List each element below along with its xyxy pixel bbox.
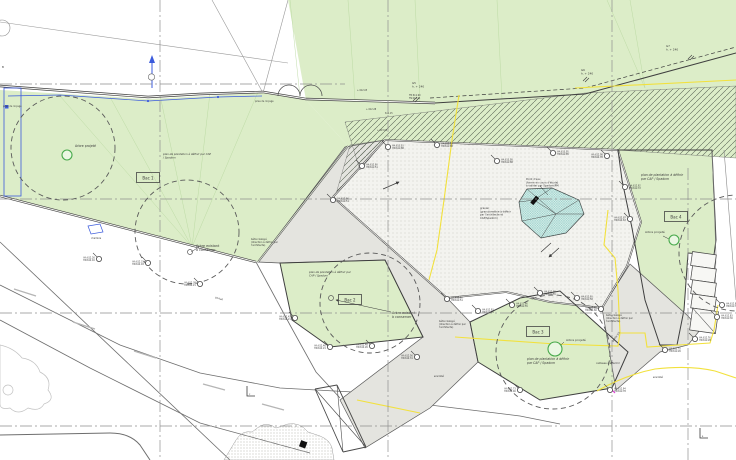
annotation-line: TN 611.75 [409, 97, 421, 100]
marker-level-hn: HN 612.88 [392, 147, 404, 150]
annotation-label: TM 611.90TN 611.75 [409, 94, 421, 100]
annotation-line: CAP/Spadom) [480, 216, 498, 220]
annotation-line: h. + 240 [581, 72, 593, 76]
marker-circle [550, 150, 555, 155]
marker-level-hn: HN 612.21 [184, 284, 196, 287]
marker-level-hn: HN 612.33 [726, 305, 736, 308]
marker-level-hn: HN 612.78 [591, 156, 603, 159]
marker-circle [434, 142, 439, 147]
annotation-label: chambre [91, 237, 102, 240]
marker-level-hn: HN 612.72 [629, 187, 641, 190]
marker-level-hn: HN 612.21 [314, 347, 326, 350]
site-plan-canvas: HA 612.26HN 612.16HA 612.31HN 612.18HA 6… [0, 0, 736, 460]
annotation-label: Arbre projeté [75, 144, 96, 148]
annotation-line: / Spadom [162, 155, 176, 159]
marker-level-hn: HN 612.51 [337, 200, 349, 203]
annotation-label: 612.15 [385, 112, 393, 115]
planter-label-text: Bac 3 [532, 330, 544, 335]
marker-circle [96, 256, 101, 261]
annotation-line: prise de rinçage [255, 100, 274, 103]
annotation-line: Arbre projeté [566, 338, 586, 342]
marker-circle [330, 197, 335, 202]
annotation-line: l'architecte) [606, 320, 620, 323]
marker-level-hn: HN 612.88 [441, 145, 453, 148]
annotation-line: Arbre projeté [645, 230, 665, 234]
annotation-label: enrobé [653, 375, 663, 379]
annotation-line: l'architecte) [251, 244, 265, 247]
annotation-line: + 612.05 [357, 89, 368, 92]
annotation-line: Arbre projeté [75, 144, 96, 148]
marker-circle [598, 306, 603, 311]
marker-level-hn: HN 612.46 [504, 390, 516, 393]
annotation-line: par CAP / Spadom [640, 177, 669, 181]
projected-tree [62, 150, 72, 160]
marker-circle [414, 354, 419, 359]
marker-circle [604, 153, 609, 158]
planter-label-text: Bac 4 [670, 215, 682, 220]
marker-circle [719, 302, 724, 307]
marker-circle [607, 387, 612, 392]
marker-circle [327, 344, 332, 349]
marker-circle [494, 158, 499, 163]
annotation-line: chambre [91, 237, 102, 240]
annotation-line: h. + 240 [412, 85, 424, 89]
marker-level-hn: HN 612.26 [669, 350, 681, 353]
marker-circle [475, 308, 480, 313]
marker-level-hn: HN 612.63 [614, 219, 626, 222]
marker-level-hn: HN 612.55 [544, 293, 556, 296]
marker-circle [292, 315, 297, 320]
marker-circle [359, 163, 364, 168]
marker-circle [537, 290, 542, 295]
annotation-label: prise de rinçage [255, 100, 274, 103]
marker-level-hn: HN 612.85 [557, 153, 569, 156]
marker-level-hn: HN 612.78 [614, 390, 626, 393]
marker-level-hn: HN 612.55 [482, 311, 494, 314]
projected-tree [669, 235, 679, 245]
marker-level-hn: HN 612.51 [451, 299, 463, 302]
annotation-line: enrobé [434, 374, 444, 378]
annotation-line: 612.15 [385, 112, 393, 115]
survey-point [148, 74, 154, 80]
annotation-line: + 613.05 [377, 129, 388, 132]
marker-circle [692, 336, 697, 341]
annotation-line: l'architecte) [439, 326, 453, 329]
marker-circle [714, 314, 719, 319]
marker-circle [444, 296, 449, 301]
marker-circle [574, 295, 579, 300]
annotation-label: prise de rinçage [3, 105, 22, 108]
annotation-line: à valider par Spadom/PM [526, 184, 559, 188]
marker-level-hn: HN 612.30 [721, 317, 733, 320]
annotation-line: enrobé [653, 375, 663, 379]
marker-level-hn: HN 612.21 [279, 318, 291, 321]
marker-level-hn: HN 612.16 [83, 259, 95, 262]
marker-circle [509, 302, 514, 307]
marker-level-hn: HN 612.58 [581, 298, 593, 301]
annotation-label: + 612.05 [357, 89, 368, 92]
annotation-label: + 613.05 [377, 129, 388, 132]
annotation-label: caillasse à affermir [596, 361, 621, 365]
marker-circle [662, 347, 667, 352]
marker-circle [145, 260, 150, 265]
marker-level-hn: HN 612.28 [699, 339, 711, 342]
annotation-line: à conserver [392, 315, 412, 319]
annotation-line: CAP / Spadom [309, 273, 328, 277]
marker-level-hn: HN 612.88 [501, 161, 513, 164]
annotation-line: prise de rinçage [3, 105, 22, 108]
marker-circle [369, 343, 374, 348]
marker-level-hn: HN 612.51 [366, 166, 378, 169]
marker-circle [197, 281, 202, 286]
annotation-line: B [2, 65, 4, 69]
annotation-line: h. + 240 [666, 48, 678, 52]
projected-tree [548, 342, 562, 356]
marker-level-hn: HN 612.18 [132, 263, 144, 266]
annotation-line: caillasse à affermir [596, 361, 621, 365]
marker-circle [385, 144, 390, 149]
marker-circle [517, 387, 522, 392]
marker-level-hn: HN 612.26 [356, 346, 368, 349]
marker-level-hn: HN 612.55 [516, 305, 528, 308]
marker-circle [627, 216, 632, 221]
planter-label-text: Bac 1 [142, 176, 154, 181]
marker-level-hn: HN 612.31 [401, 357, 413, 360]
annotation-line: + 612.28 [366, 108, 377, 111]
plan-drawing: HA 612.26HN 612.16HA 612.31HN 612.18HA 6… [0, 0, 736, 460]
annotation-label: B [2, 65, 4, 69]
planter-label-text: Bac 2 [344, 298, 356, 303]
marker-circle [622, 184, 627, 189]
marker-level-hn: HN 612.60 [585, 309, 597, 312]
annotation-label: enrobé [434, 374, 444, 378]
annotation-label: + 612.28 [366, 108, 377, 111]
annotation-line: par CAP / Spadom [526, 361, 555, 365]
annotation-line: à conserver [196, 248, 216, 252]
annotation-label: Arbre projeté [566, 338, 586, 342]
annotation-label: Arbre projeté [645, 230, 665, 234]
